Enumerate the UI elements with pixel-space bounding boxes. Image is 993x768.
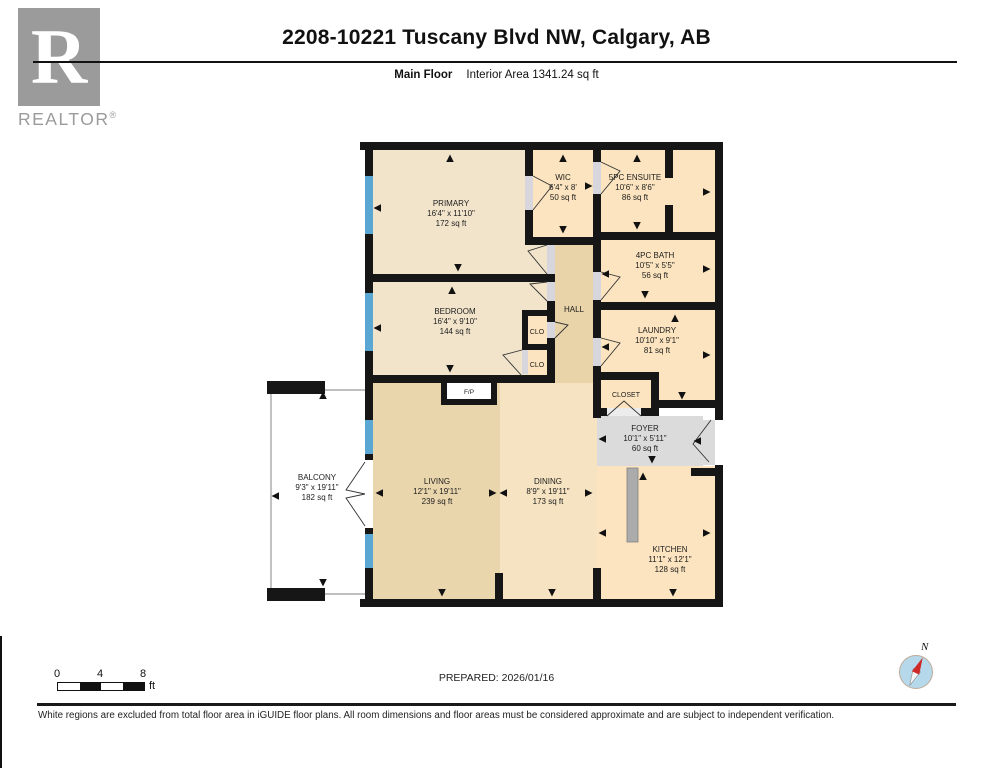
floor-plan-page: R REALTOR® 2208-10221 Tuscany Blvd NW, C… — [0, 0, 993, 768]
balcony-area: 182 sq ft — [302, 493, 333, 502]
foyer-name: FOYER — [631, 424, 659, 433]
floor-subtitle: Main FloorInterior Area 1341.24 sq ft — [0, 69, 993, 81]
room-kitchen — [597, 466, 715, 599]
bedroom-name: BEDROOM — [434, 307, 476, 316]
clo-upper-label: CLO — [530, 329, 545, 336]
laundry-name: LAUNDRY — [638, 326, 677, 335]
realtor-logo-wordmark: REALTOR® — [18, 109, 118, 130]
kitchen-name: KITCHEN — [652, 545, 687, 554]
window-bedroom — [365, 293, 373, 351]
scale-segment — [123, 683, 145, 690]
wic-dims: 6'4" x 8' — [549, 183, 577, 192]
interior-area-label: Interior Area 1341.24 sq ft — [466, 69, 598, 81]
page-edge-mark — [0, 636, 2, 768]
bath-dims: 10'5" x 5'5" — [635, 261, 675, 270]
balcony-railing — [271, 390, 365, 594]
compass-icon: N — [894, 638, 942, 694]
living-dims: 12'1" x 19'11" — [413, 487, 461, 496]
realtor-brand-text: REALTOR — [18, 109, 110, 129]
room-ensuite — [601, 150, 715, 240]
primary-name: PRIMARY — [433, 199, 470, 208]
window-living-lower — [365, 534, 373, 568]
dining-dims: 8'9" x 19'11" — [526, 487, 569, 496]
ensuite-area: 86 sq ft — [622, 193, 649, 202]
disclaimer-text: White regions are excluded from total fl… — [38, 710, 958, 721]
kitchen-dims: 11'1" x 12'1" — [648, 555, 691, 564]
laundry-dims: 10'10" x 9'1" — [635, 336, 679, 345]
wic-name: WIC — [555, 173, 571, 182]
door-balcony-left — [346, 462, 365, 494]
ensuite-name: 5PC ENSUITE — [609, 173, 661, 182]
dining-name: DINING — [534, 477, 562, 486]
wic-area: 50 sq ft — [550, 193, 577, 202]
door-balcony-right — [346, 494, 365, 526]
primary-dims: 16'4" x 11'10" — [427, 209, 475, 218]
closet-label: CLOSET — [612, 392, 641, 399]
kitchen-area: 128 sq ft — [655, 565, 686, 574]
laundry-area: 81 sq ft — [644, 346, 671, 355]
window-living-upper — [365, 420, 373, 454]
title-divider — [33, 61, 957, 63]
page-title: 2208-10221 Tuscany Blvd NW, Calgary, AB — [0, 26, 993, 50]
realtor-logo-icon: R — [18, 8, 100, 106]
foyer-dims: 10'1" x 5'11" — [623, 434, 666, 443]
bedroom-dims: 16'4" x 9'10" — [433, 317, 477, 326]
living-area: 239 sq ft — [422, 497, 453, 506]
balcony-name: BALCONY — [298, 473, 337, 482]
ensuite-dims: 10'6" x 8'6" — [615, 183, 655, 192]
room-fills — [373, 150, 715, 599]
footer-divider — [37, 703, 956, 706]
bedroom-area: 144 sq ft — [440, 327, 471, 336]
compass-north-label: N — [920, 641, 929, 653]
registered-mark: ® — [110, 110, 118, 120]
floor-plan: PRIMARY 16'4" x 11'10" 172 sq ft WIC 6'4… — [245, 128, 745, 628]
fireplace-label: F/P — [464, 389, 474, 396]
balcony-dims: 9'3" x 19'11" — [295, 483, 338, 492]
prepared-date: PREPARED: 2026/01/16 — [0, 672, 993, 684]
bath-area: 56 sq ft — [642, 271, 669, 280]
foyer-area: 60 sq ft — [632, 444, 659, 453]
bath-name: 4PC BATH — [636, 251, 675, 260]
kitchen-island — [627, 468, 638, 542]
window-primary — [365, 176, 373, 234]
hall-label: HALL — [564, 305, 585, 314]
scale-segment — [80, 683, 102, 690]
primary-area: 172 sq ft — [436, 219, 467, 228]
floor-label: Main Floor — [394, 69, 452, 81]
clo-lower-label: CLO — [530, 362, 545, 369]
living-name: LIVING — [424, 477, 450, 486]
dining-area: 173 sq ft — [533, 497, 564, 506]
